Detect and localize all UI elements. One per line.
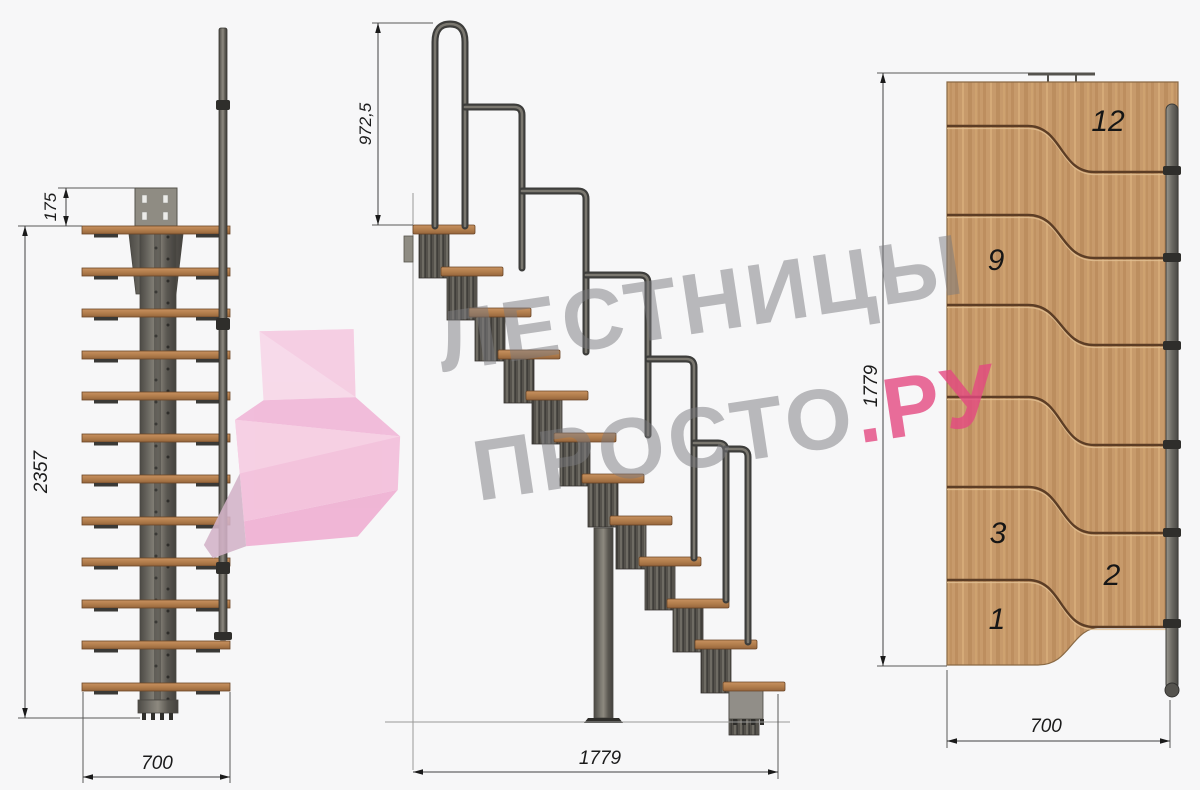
step-number-1: 1	[989, 603, 1006, 636]
step-tread	[582, 474, 644, 483]
step-tread	[82, 268, 230, 276]
plan-wood-panel	[947, 82, 1178, 665]
step-number-2: 2	[1103, 559, 1121, 592]
dim-label-front-width: 700	[141, 753, 173, 774]
dim-label-total-height: 2357	[31, 449, 52, 494]
staircase-technical-drawing: 175 2357 700	[0, 0, 1200, 790]
plan-handrail-bar	[1163, 104, 1181, 697]
column-base	[138, 700, 178, 713]
step-tread	[441, 267, 503, 276]
front-mount-plate	[135, 188, 177, 226]
step-tread	[498, 350, 560, 359]
step-tread	[82, 351, 230, 359]
step-number-12: 12	[1091, 105, 1125, 138]
step-number-3: 3	[990, 517, 1007, 550]
step-number-9: 9	[988, 244, 1005, 277]
front-view: 175 2357 700	[18, 28, 232, 783]
step-tread	[82, 683, 230, 691]
drawing-canvas: 175 2357 700	[0, 0, 1200, 790]
step-tread	[82, 392, 230, 400]
step-tread	[82, 558, 230, 566]
step-tread	[723, 682, 785, 691]
step-tread	[82, 226, 230, 234]
plan-view: 12 9 3 2 1 1779	[861, 73, 1181, 748]
dim-label-plan-length: 1779	[861, 364, 882, 407]
side-view: 972,5 1779	[356, 23, 790, 779]
step-tread	[82, 517, 230, 525]
step-tread	[526, 391, 588, 400]
front-handrail-post	[214, 28, 232, 640]
dim-label-handrail-height: 972,5	[356, 102, 375, 145]
step-tread	[82, 600, 230, 608]
dim-label-plan-width: 700	[1030, 716, 1062, 737]
wall-mount-tab	[404, 236, 413, 262]
base-module	[729, 690, 763, 719]
dim-label-side-length: 1779	[579, 748, 622, 769]
dimension-plate-offset: 175	[18, 188, 135, 226]
step-tread	[469, 308, 531, 317]
dimension-plan-width: 700	[947, 670, 1170, 748]
step-tread	[82, 475, 230, 483]
step-tread	[610, 516, 672, 525]
step-tread	[82, 434, 230, 442]
step-tread	[554, 433, 616, 442]
step-tread	[667, 599, 729, 608]
dimension-handrail-height: 972,5	[356, 23, 433, 225]
dim-label-plate-offset: 175	[41, 192, 60, 221]
step-tread	[82, 641, 230, 649]
step-tread	[82, 309, 230, 317]
